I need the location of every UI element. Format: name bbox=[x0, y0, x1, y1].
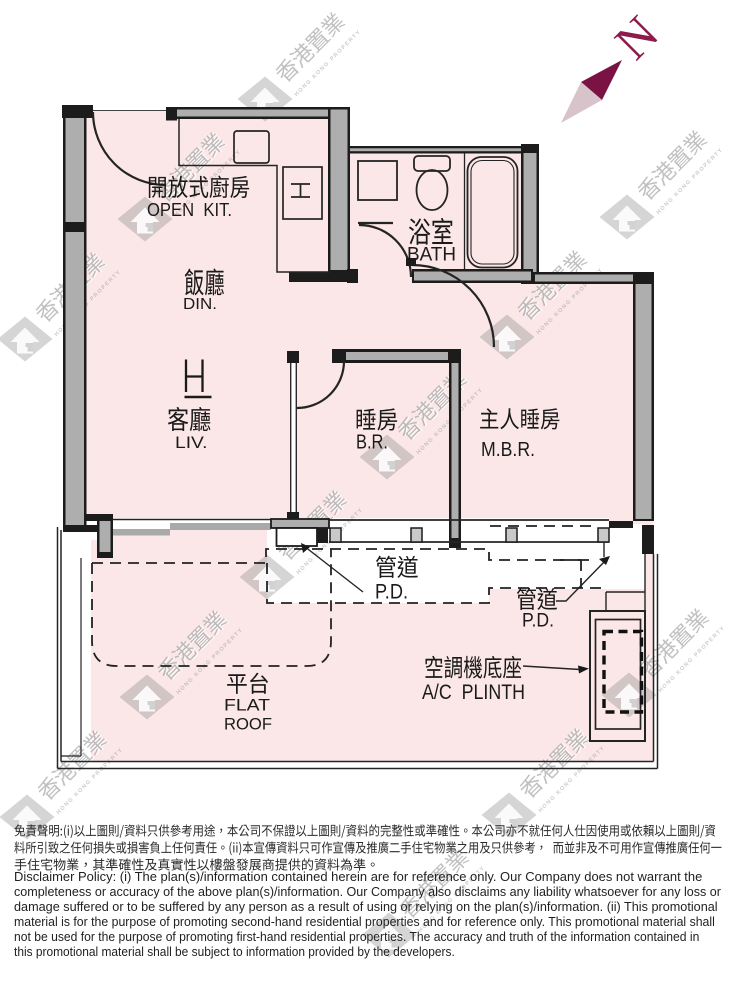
svg-text:DIN.: DIN. bbox=[183, 296, 217, 313]
svg-text:completeness or accuracy of th: completeness or accuracy of the above pl… bbox=[14, 884, 722, 899]
svg-text:damage suffered or to be suffe: damage suffered or to be suffered by any… bbox=[14, 899, 718, 914]
svg-text:this promotional material shal: this promotional material shall be subje… bbox=[14, 945, 455, 960]
svg-text:ROOF: ROOF bbox=[224, 716, 272, 734]
svg-text:M.B.R.: M.B.R. bbox=[481, 438, 535, 461]
svg-text:P.D.: P.D. bbox=[522, 611, 554, 632]
svg-text:B.R.: B.R. bbox=[356, 432, 388, 454]
svg-text:BATH: BATH bbox=[407, 244, 456, 266]
svg-text:FLAT: FLAT bbox=[224, 697, 270, 715]
svg-text:OPEN KIT.: OPEN KIT. bbox=[147, 199, 232, 220]
svg-text:not be used for the purpose of: not be used for the purpose of promoting… bbox=[14, 930, 699, 944]
svg-text:LIV.: LIV. bbox=[175, 433, 208, 452]
svg-text:P.D.: P.D. bbox=[375, 581, 408, 604]
svg-text:A/C PLINTH: A/C PLINTH bbox=[422, 680, 525, 704]
svg-text:Disclaimer Policy: (i) The pla: Disclaimer Policy: (i) The plan(s)/infor… bbox=[14, 869, 702, 884]
svg-text:material is for the purpose of: material is for the purpose of promoting… bbox=[14, 915, 715, 929]
